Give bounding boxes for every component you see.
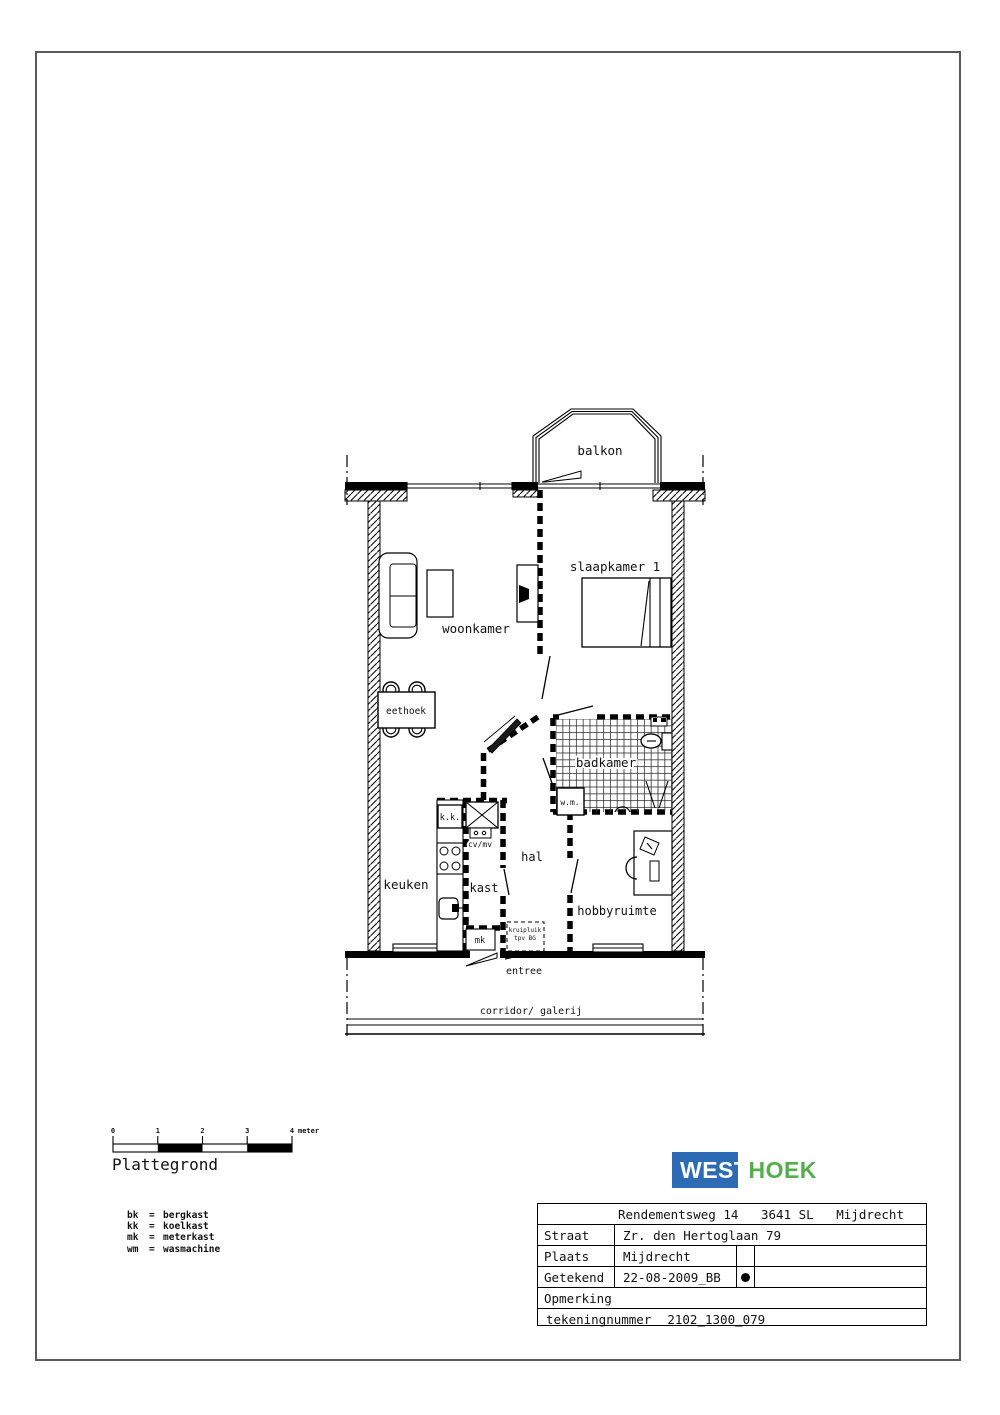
entrance-door-leaf <box>466 953 497 966</box>
room-label-kast: kast <box>470 881 499 895</box>
bathroom-door-leaf <box>558 706 593 715</box>
bed <box>582 578 671 647</box>
coffee-table <box>427 570 453 617</box>
closet-door-leaf <box>504 869 509 895</box>
washbasin-icon <box>651 717 667 726</box>
legend-item-bk: bk = bergkast <box>127 1210 220 1221</box>
fixture-label-kk: k.k. <box>440 813 460 823</box>
livingroom-door-leaf <box>488 719 521 753</box>
drawing-sheet: balkon slaapkamer 1 woonkamer eethoek ba… <box>0 0 1000 1415</box>
scale-tick-1: 1 <box>156 1127 160 1135</box>
room-label-entree: entree <box>506 966 542 977</box>
scale-bar: 0 1 2 3 4 meter Plattegrond <box>111 1127 319 1174</box>
legend-abbr: wm <box>127 1244 149 1255</box>
drawing-title: Plattegrond <box>112 1155 218 1174</box>
legend-name: bergkast <box>163 1210 209 1221</box>
room-label-woonkamer: woonkamer <box>442 621 510 636</box>
address-line: Rendementsweg 14 3641 SL Mijdrecht <box>538 1207 904 1222</box>
small-cell <box>736 1246 754 1266</box>
legend: bk = bergkast kk = koelkast mk = meterka… <box>127 1210 220 1255</box>
room-label-hobbyruimte: hobbyruimte <box>577 904 656 918</box>
room-label-eethoek: eethoek <box>386 706 426 717</box>
legend-item-kk: kk = koelkast <box>127 1221 220 1232</box>
room-label-corridor: corridor/ galerij <box>480 1006 582 1017</box>
fixture-label-mk: mk <box>475 936 485 946</box>
legend-name: wasmachine <box>163 1244 220 1255</box>
toilet-icon <box>641 733 672 750</box>
room-label-slaapkamer: slaapkamer 1 <box>570 559 660 574</box>
legend-item-mk: mk = meterkast <box>127 1232 220 1243</box>
legend-abbr: kk <box>127 1221 149 1232</box>
fixture-label-kruipluik-2: tpv BG <box>514 935 536 942</box>
sofa <box>379 553 417 638</box>
titleblock-drawn-row: Getekend 22-08-2009_BB <box>538 1266 926 1287</box>
room-label-badkamer: badkamer <box>576 755 637 770</box>
drawingnumber-value: 2102_1300_079 <box>667 1312 765 1327</box>
legend-abbr: mk <box>127 1232 149 1243</box>
hobbyroom-door-leaf <box>571 859 578 893</box>
legend-eq: = <box>149 1244 163 1255</box>
logo-hoek: HOEK <box>748 1157 816 1183</box>
place-label: Plaats <box>538 1249 614 1264</box>
empty-cell <box>754 1246 926 1266</box>
titleblock-street-row: Straat Zr. den Hertoglaan 79 <box>538 1224 926 1245</box>
place-value: Mijdrecht <box>614 1246 736 1266</box>
desk <box>634 831 672 895</box>
drawn-label: Getekend <box>538 1270 614 1285</box>
logo-west: WEST <box>680 1157 748 1183</box>
room-label-balkon: balkon <box>577 443 622 458</box>
scale-tick-2: 2 <box>200 1127 204 1135</box>
legend-name: meterkast <box>163 1232 214 1243</box>
legend-eq: = <box>149 1210 163 1221</box>
cv-unit <box>466 802 498 838</box>
scale-unit: meter <box>298 1127 319 1135</box>
vent-unit <box>470 828 491 838</box>
drawn-value: 22-08-2009_BB <box>614 1267 736 1287</box>
room-label-hal: hal <box>521 850 543 864</box>
titleblock-drawingnumber-row: tekeningnummer 2102_1300_079 <box>538 1308 926 1329</box>
titleblock-remark-row: Opmerking <box>538 1287 926 1308</box>
monitor <box>650 861 659 881</box>
fixture-label-wm: w.m. <box>560 798 579 807</box>
fixture-label-kruipluik-1: kruipluik <box>509 927 542 934</box>
legend-name: koelkast <box>163 1221 209 1232</box>
tv-cabinet <box>517 565 538 622</box>
legend-item-wm: wm = wasmachine <box>127 1244 220 1255</box>
scale-tick-0: 0 <box>111 1127 115 1135</box>
balcony-door-leaf <box>542 471 581 482</box>
scale-tick-3: 3 <box>245 1127 249 1135</box>
empty-cell <box>754 1267 926 1287</box>
titleblock-address-row: Rendementsweg 14 3641 SL Mijdrecht <box>538 1204 926 1224</box>
street-value: Zr. den Hertoglaan 79 <box>614 1225 926 1245</box>
fixture-label-cvmv: cv/mv <box>468 840 492 849</box>
legend-abbr: bk <box>127 1210 149 1221</box>
room-label-keuken: keuken <box>383 877 428 892</box>
titleblock-place-row: Plaats Mijdrecht <box>538 1245 926 1266</box>
remark-label: Opmerking <box>538 1291 614 1306</box>
street-label: Straat <box>538 1228 614 1243</box>
legend-eq: = <box>149 1232 163 1243</box>
title-block: Rendementsweg 14 3641 SL Mijdrecht Straa… <box>537 1203 927 1326</box>
legend-eq: = <box>149 1221 163 1232</box>
scale-tick-4: 4 <box>290 1127 294 1135</box>
bedroom-door-leaf <box>542 656 550 699</box>
revision-dot <box>741 1273 750 1282</box>
drawingnumber-label: tekeningnummer <box>538 1312 651 1327</box>
stove <box>437 843 463 874</box>
revision-dot-cell <box>736 1267 754 1287</box>
